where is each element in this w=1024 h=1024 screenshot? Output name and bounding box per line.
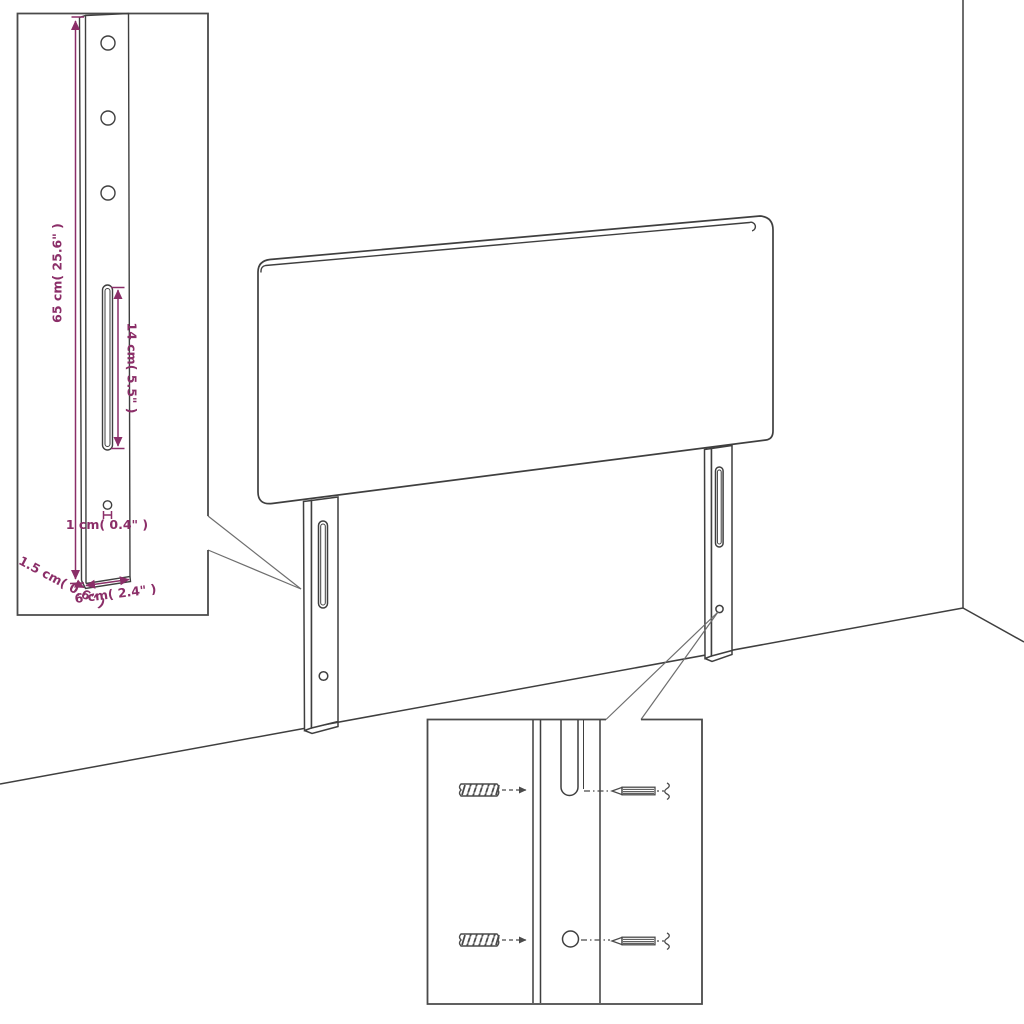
inset-slot-closeup xyxy=(561,720,578,796)
inset-leg-hole-1 xyxy=(101,36,115,50)
bottom-inset-callout-right xyxy=(641,612,718,720)
bottom-inset-callout-left xyxy=(606,612,718,720)
floor-line-left xyxy=(0,608,963,784)
assembly-diagram: 65 cm( 25.6" ) 14 cm( 5.5" ) 1 cm( 0.4" … xyxy=(0,0,1024,1024)
left-leg-front-face xyxy=(312,497,339,728)
mounting-inset-border xyxy=(428,720,703,1005)
floor-line-right xyxy=(963,608,1024,642)
callout-lines xyxy=(208,516,718,720)
dim-label-hole-diameter: 1 cm( 0.4" ) xyxy=(66,517,148,532)
inset-leg-slot xyxy=(103,285,113,450)
dimension-annotations xyxy=(70,17,129,588)
dim-label-board-height: 65 cm( 25.6" ) xyxy=(50,223,65,323)
headboard-panel xyxy=(258,216,773,504)
left-inset-callout-bottom xyxy=(208,550,301,589)
diagram-canvas: 65 cm( 25.6" ) 14 cm( 5.5" ) 1 cm( 0.4" … xyxy=(0,0,1024,1024)
left-leg-side-face xyxy=(304,501,312,731)
inset-leg-hole-2 xyxy=(101,111,115,125)
mounting-detail-inset xyxy=(428,720,703,1005)
dim-label-slot-length: 14 cm( 5.5" ) xyxy=(125,323,140,414)
left-leg xyxy=(304,497,339,734)
left-inset-callout-top xyxy=(208,516,301,589)
inset-leg-hole-3 xyxy=(101,186,115,200)
leg-detail-inset: 65 cm( 25.6" ) 14 cm( 5.5" ) 1 cm( 0.4" … xyxy=(16,14,208,616)
right-leg-front-face xyxy=(712,446,733,657)
right-leg xyxy=(705,446,733,662)
inset-wall-hole xyxy=(563,931,579,947)
right-leg-side-face xyxy=(705,449,712,659)
inset-leg-small-hole xyxy=(103,501,111,509)
inset-leg-slot-inner xyxy=(105,289,110,447)
